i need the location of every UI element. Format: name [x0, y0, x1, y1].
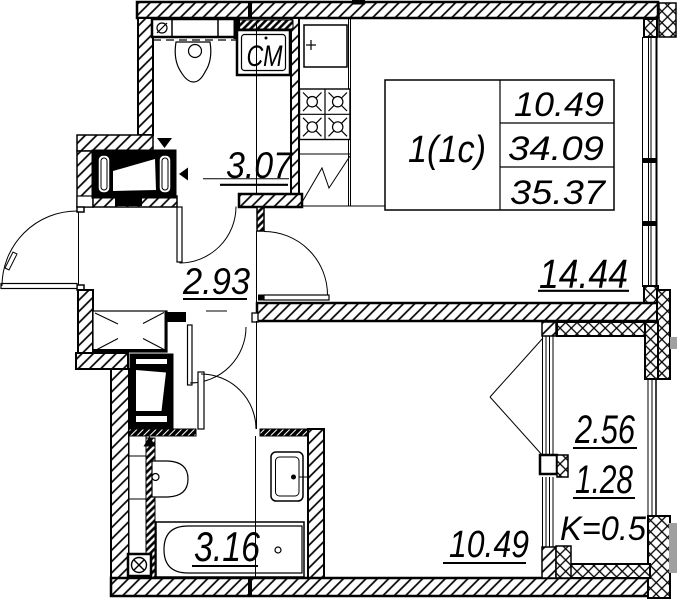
svg-text:10.49: 10.49: [514, 86, 604, 124]
svg-text:СМ: СМ: [247, 40, 283, 73]
svg-text:3.07: 3.07: [226, 145, 293, 186]
svg-text:34.09: 34.09: [508, 130, 604, 168]
svg-text:10.49: 10.49: [449, 524, 529, 566]
svg-text:K=0.5: K=0.5: [560, 510, 646, 548]
svg-text:2.93: 2.93: [182, 261, 250, 302]
svg-text:2.56: 2.56: [574, 408, 635, 452]
svg-text:35.37: 35.37: [510, 174, 606, 212]
svg-text:1.28: 1.28: [575, 458, 634, 502]
svg-text:1(1c): 1(1c): [408, 129, 486, 171]
svg-text:3.16: 3.16: [194, 523, 261, 570]
